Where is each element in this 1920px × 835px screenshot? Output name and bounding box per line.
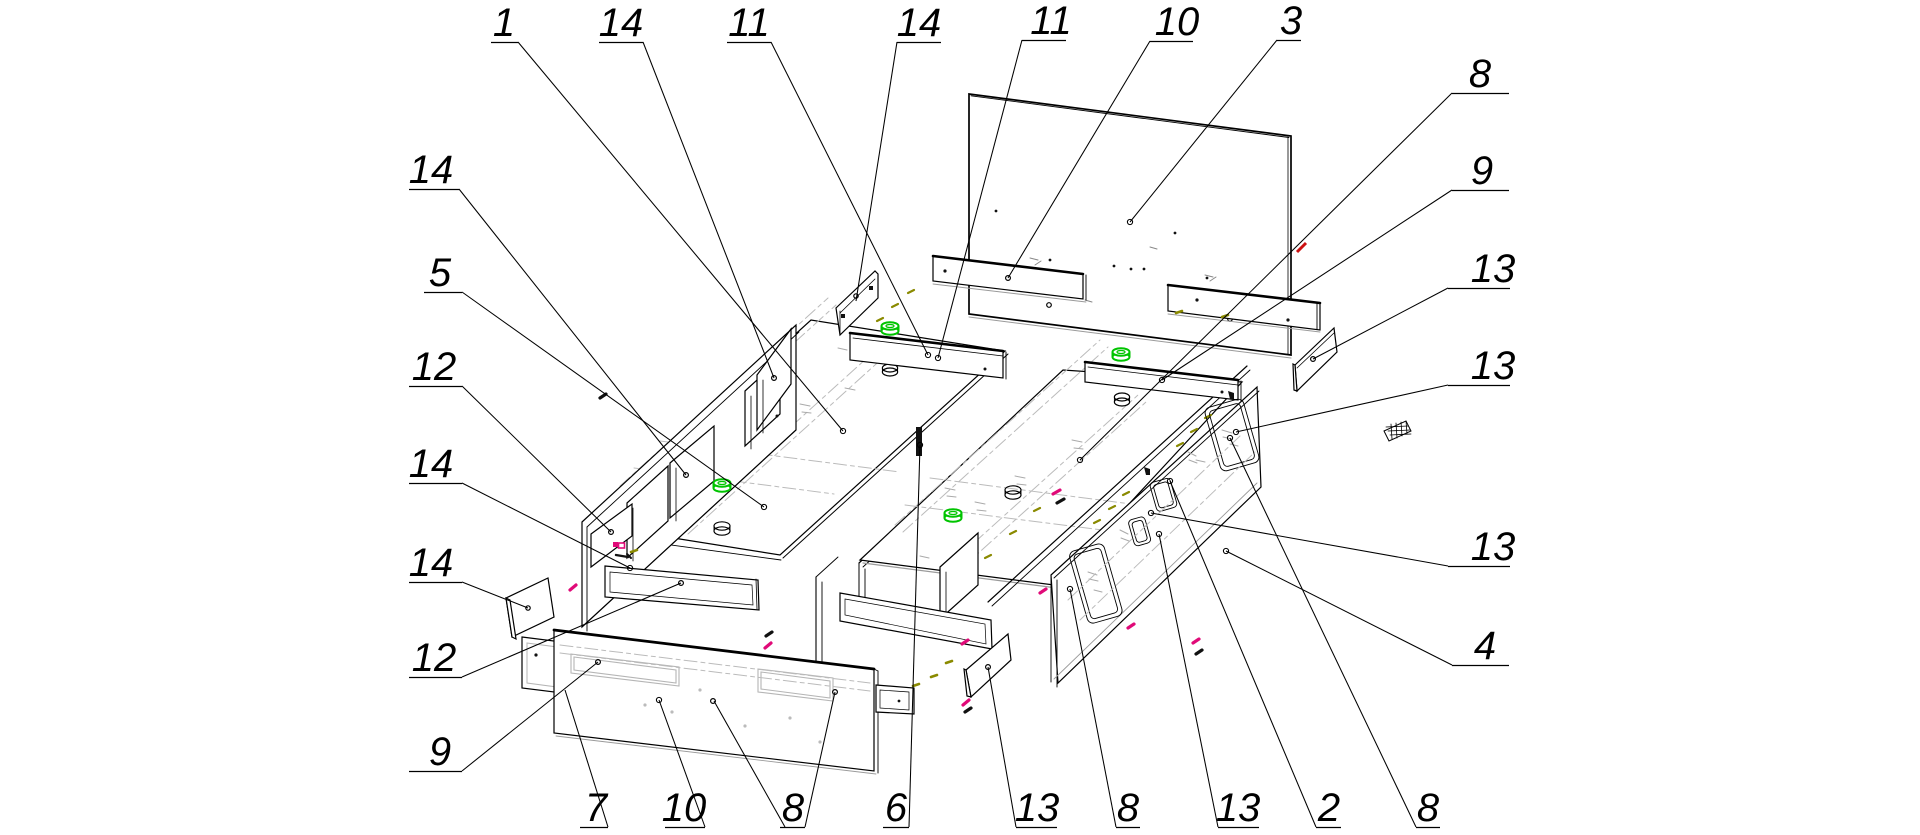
svg-text:14: 14: [897, 1, 942, 45]
svg-text:11: 11: [728, 1, 770, 45]
svg-text:14: 14: [409, 148, 454, 192]
svg-text:13: 13: [1471, 344, 1516, 388]
svg-text:11: 11: [1030, 0, 1072, 43]
svg-text:14: 14: [409, 442, 454, 486]
svg-text:10: 10: [662, 786, 707, 830]
svg-text:12: 12: [412, 636, 457, 680]
svg-text:9: 9: [429, 730, 451, 774]
svg-text:4: 4: [1474, 624, 1496, 668]
svg-text:13: 13: [1015, 786, 1060, 830]
svg-text:5: 5: [429, 251, 452, 295]
svg-text:9: 9: [1471, 149, 1493, 193]
svg-text:14: 14: [599, 1, 644, 45]
svg-text:8: 8: [1469, 52, 1492, 96]
svg-text:2: 2: [1317, 786, 1340, 830]
svg-text:3: 3: [1280, 0, 1302, 43]
svg-text:12: 12: [412, 345, 457, 389]
svg-text:8: 8: [1117, 786, 1140, 830]
svg-text:13: 13: [1471, 525, 1516, 569]
svg-text:13: 13: [1471, 247, 1516, 291]
svg-text:14: 14: [409, 541, 454, 585]
svg-text:1: 1: [493, 1, 515, 45]
svg-text:6: 6: [885, 786, 908, 830]
svg-text:13: 13: [1216, 786, 1261, 830]
svg-text:10: 10: [1155, 0, 1200, 44]
svg-text:8: 8: [1417, 786, 1440, 830]
svg-text:7: 7: [585, 786, 609, 830]
svg-text:8: 8: [782, 786, 805, 830]
